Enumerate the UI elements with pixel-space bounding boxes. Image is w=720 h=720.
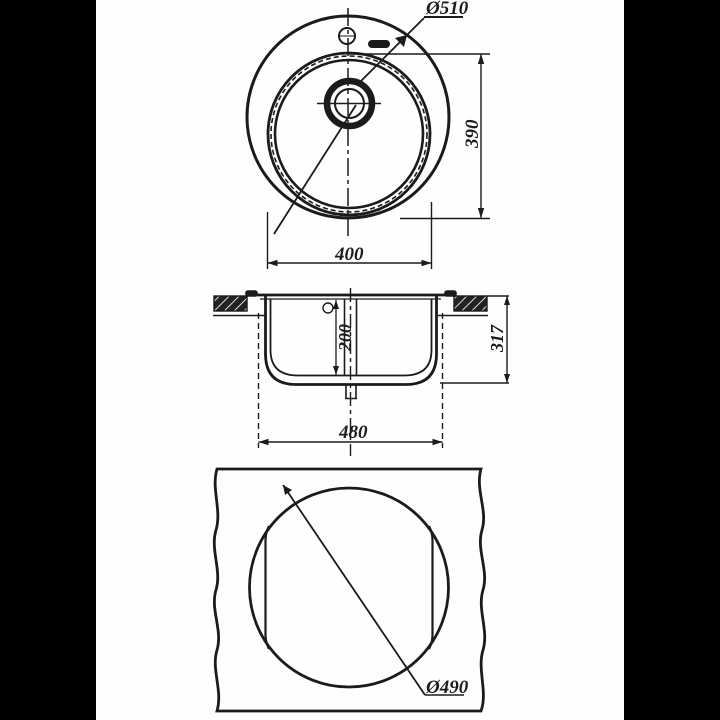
svg-text:317: 317 [487,324,507,353]
svg-text:200: 200 [335,324,355,352]
svg-text:Ø510: Ø510 [425,0,469,19]
svg-text:400: 400 [334,244,364,265]
svg-text:390: 390 [462,119,483,149]
svg-text:480: 480 [338,422,368,443]
svg-text:Ø490: Ø490 [425,677,469,698]
